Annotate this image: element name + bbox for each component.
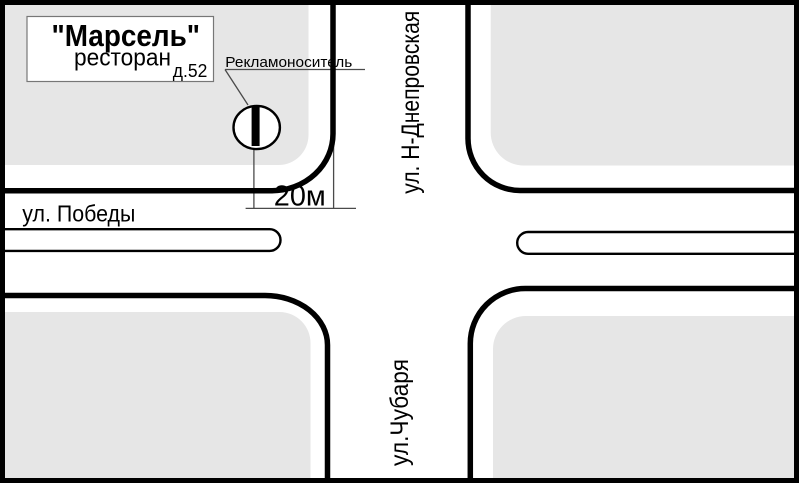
svg-text:Рекламоноситель: Рекламоноситель <box>225 55 352 71</box>
svg-text:20м: 20м <box>274 181 326 213</box>
svg-text:ул. Победы: ул. Победы <box>22 200 135 226</box>
svg-text:д.52: д.52 <box>173 61 208 81</box>
svg-text:ул.Чубаря: ул.Чубаря <box>386 359 414 466</box>
svg-text:ресторан: ресторан <box>74 44 171 71</box>
svg-text:ул. Н-Днепровская: ул. Н-Днепровская <box>397 11 425 194</box>
